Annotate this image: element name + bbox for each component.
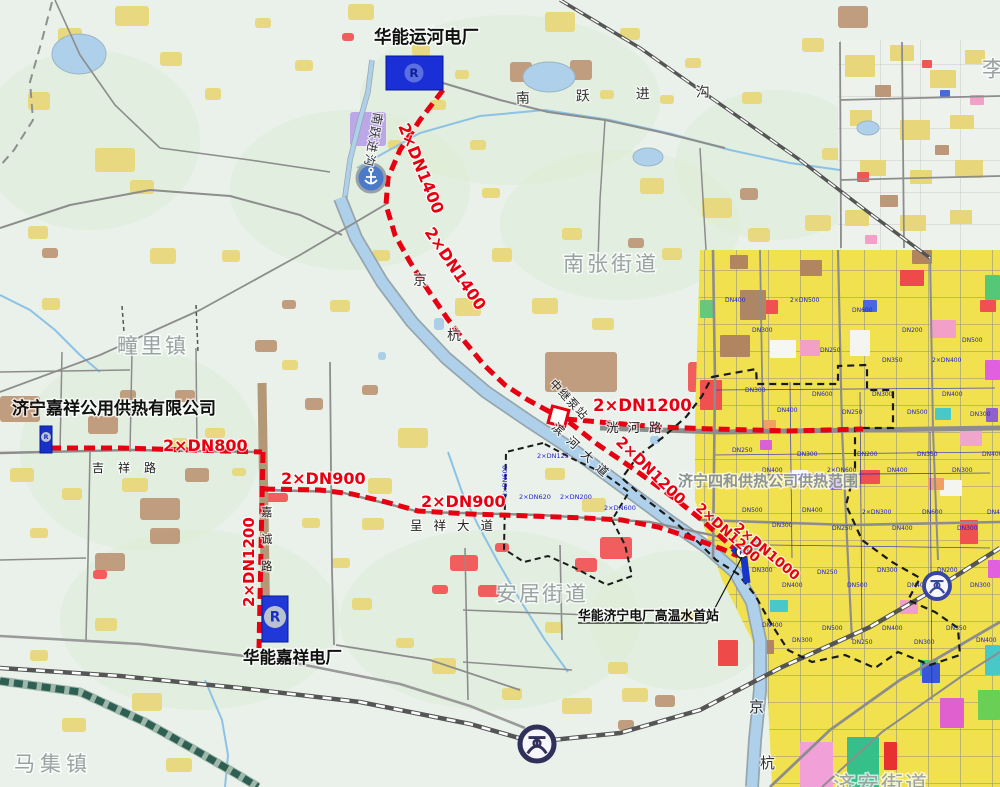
city-block <box>900 270 924 286</box>
city-block <box>922 60 932 68</box>
dn-label: DN500 <box>822 625 843 632</box>
dn-label: DN300 <box>745 387 766 394</box>
area-label: 济安街道 <box>833 773 929 787</box>
area-label: 疃里镇 <box>117 334 189 358</box>
heating-pipeline-planning-map[interactable]: DN400DN3002×DN500DN250DN600DN350DN2002×D… <box>0 0 1000 787</box>
landuse-patch <box>655 695 675 707</box>
dn-label: DN200 <box>857 451 878 458</box>
landuse-patch <box>115 6 149 26</box>
dn-label: DN400 <box>987 509 1000 516</box>
dn-label: DN200 <box>902 327 923 334</box>
city-block <box>718 640 738 666</box>
dn-label: DN600 <box>852 307 873 314</box>
landuse-patch <box>532 298 558 314</box>
landuse-patch <box>432 585 448 594</box>
landuse-patch <box>150 528 180 544</box>
landuse-patch <box>600 537 632 559</box>
landuse-patch <box>838 6 868 28</box>
landuse-patch <box>492 248 512 262</box>
plant-label: 华能济宁电厂高温水首站 <box>578 608 719 624</box>
landuse-patch <box>802 38 824 52</box>
landuse-patch <box>295 60 313 71</box>
dn-label: DN300 <box>872 391 893 398</box>
landuse-patch <box>352 598 372 610</box>
dn-label: DN500 <box>742 507 763 514</box>
landuse-patch <box>432 658 456 674</box>
landuse-patch <box>545 468 565 480</box>
landuse-patch <box>282 360 298 370</box>
landuse-patch <box>305 398 323 410</box>
plant-label: 济宁嘉祥公用供热有限公司 <box>12 398 216 419</box>
pipe-diameter-label: 2×DN900 <box>421 492 506 511</box>
pipe-diameter-label: 2×DN1200 <box>593 396 692 415</box>
landuse-patch <box>396 638 414 648</box>
landuse-patch <box>575 558 597 572</box>
landuse-patch <box>398 428 428 448</box>
dn-label: DN300 <box>970 582 991 589</box>
landuse-patch <box>702 198 732 218</box>
city-block <box>857 172 869 182</box>
road-label: 洸河路 <box>606 420 671 435</box>
dn-label: DN300 <box>914 639 935 646</box>
landuse-patch <box>348 4 374 20</box>
dn-label: DN400 <box>725 297 746 304</box>
road <box>840 42 841 248</box>
dn-label: DN350 <box>917 451 938 458</box>
landuse-patch <box>378 352 386 360</box>
landuse-patch <box>495 543 509 552</box>
dn-label: DN400 <box>887 467 908 474</box>
dn-label: 2×DN300 <box>862 509 892 516</box>
city-block <box>740 290 766 320</box>
landuse-patch <box>30 650 48 661</box>
landuse-patch <box>10 468 34 482</box>
dn-label: DN400 <box>976 637 997 644</box>
city-block <box>770 600 788 612</box>
power-plant-glyph: R <box>270 610 281 626</box>
dn-label: DN400 <box>892 525 913 532</box>
pond <box>523 62 575 92</box>
dn-label: DN300 <box>877 567 898 574</box>
dn-label: DN300 <box>752 327 773 334</box>
landuse-patch <box>562 698 592 714</box>
landuse-patch <box>95 618 117 631</box>
landuse-patch <box>434 318 444 330</box>
city-block <box>700 300 714 318</box>
dn-label: DN400 <box>882 625 903 632</box>
landuse-patch <box>748 228 770 242</box>
pond <box>633 148 663 166</box>
landuse-patch <box>302 518 320 528</box>
road-label: 吉祥路 <box>92 460 170 475</box>
dn-label: DN250 <box>852 639 873 646</box>
pipe-diameter-label: 2×DN1200 <box>240 517 258 607</box>
landuse-patch <box>140 498 180 520</box>
city-block <box>865 235 877 244</box>
city-block <box>760 440 772 450</box>
landuse-patch <box>592 318 614 330</box>
landuse-patch <box>232 468 246 476</box>
dn-label: DN600 <box>922 509 943 516</box>
dn-label: DN500 <box>847 582 868 589</box>
landuse-patch <box>222 250 240 262</box>
area-label: 马集镇 <box>14 752 92 776</box>
city-block <box>980 300 996 312</box>
landuse-patch <box>62 718 86 732</box>
city-block <box>845 55 875 77</box>
dn-label: DN500 <box>907 409 928 416</box>
landuse-patch <box>805 215 831 231</box>
power-plant-glyph: R <box>44 434 49 441</box>
city-block <box>930 70 956 88</box>
landuse-patch <box>332 558 350 568</box>
city-block <box>940 698 964 728</box>
city-block <box>955 160 983 178</box>
landuse-patch <box>122 478 148 492</box>
landuse-patch <box>362 518 384 530</box>
city-block <box>935 408 951 420</box>
landuse-patch <box>740 188 758 200</box>
dn-label: DN350 <box>882 357 903 364</box>
area-label: 安居街道 <box>496 582 588 606</box>
dn-label: DN350 <box>946 625 967 632</box>
landuse-patch <box>362 385 378 395</box>
landuse-patch <box>166 758 192 772</box>
road-label: 京 <box>413 273 427 289</box>
road-label: 杭 <box>760 754 775 772</box>
city-block <box>850 330 870 356</box>
pipe-diameter-label: 2×DN900 <box>281 469 366 488</box>
landuse-patch <box>42 298 60 310</box>
dn-label: 2×DN600 <box>604 504 636 512</box>
city-block <box>900 120 930 140</box>
landuse-patch <box>482 188 500 198</box>
dn-label: DN250 <box>817 569 838 576</box>
landuse-patch <box>368 478 392 494</box>
city-block <box>930 320 956 338</box>
pipe-diameter-label: 2×DN800 <box>163 436 248 455</box>
dn-label: 2×DN125 <box>537 452 569 460</box>
power-plant-glyph: R <box>409 66 418 80</box>
dn-label: DN300 <box>752 567 773 574</box>
dn-label: DN300 <box>970 411 991 418</box>
landuse-patch <box>150 248 176 264</box>
landuse-patch <box>628 238 644 248</box>
plant-label: 华能嘉祥电厂 <box>243 647 342 667</box>
dn-label: DN400 <box>982 451 1000 458</box>
dn-label: 2×DN400 <box>932 357 962 364</box>
landuse-patch <box>545 12 575 32</box>
landuse-patch <box>28 226 48 239</box>
city-block <box>880 195 898 207</box>
dn-label: DN300 <box>797 451 818 458</box>
city-block <box>730 255 748 269</box>
dn-label: 2×DN200 <box>560 493 592 501</box>
landuse-patch <box>30 528 48 538</box>
city-block <box>875 85 891 97</box>
road-label: 嘉诚路 <box>261 505 273 573</box>
dn-label: DN250 <box>732 447 753 454</box>
dn-label: DN300 <box>952 467 973 474</box>
road-label: 呈祥大道 <box>410 518 504 533</box>
city-block <box>950 210 972 224</box>
dn-label: DN300 <box>792 637 813 644</box>
city-block <box>770 340 796 358</box>
dn-label: DN500 <box>962 337 983 344</box>
dn-label: DN300 <box>957 525 978 532</box>
city-block <box>985 275 1000 300</box>
landuse-patch <box>562 228 582 240</box>
landuse-patch <box>95 553 125 571</box>
landuse-patch <box>640 178 664 194</box>
landuse-patch <box>455 70 469 79</box>
dn-label: DN400 <box>802 507 823 514</box>
road-label: 杭 <box>447 328 461 344</box>
landuse-patch <box>622 688 648 702</box>
landuse-patch <box>470 140 486 150</box>
dn-label: DN250 <box>820 347 841 354</box>
landuse-patch <box>95 148 135 172</box>
landuse-patch <box>342 33 354 41</box>
city-block <box>800 260 822 276</box>
landuse-patch <box>42 248 58 258</box>
dn-label: DN300 <box>772 522 793 529</box>
dn-label: DN400 <box>762 622 783 629</box>
landuse-patch <box>608 662 628 674</box>
landuse-patch <box>62 488 82 500</box>
landuse-patch <box>330 300 350 312</box>
city-block <box>720 335 750 357</box>
dn-label: DN400 <box>777 407 798 414</box>
landuse-patch <box>255 340 277 352</box>
city-block <box>978 690 1000 720</box>
landuse-patch <box>132 693 162 711</box>
dn-label: DN600 <box>812 391 833 398</box>
city-block <box>988 560 1000 578</box>
landuse-patch <box>185 468 209 482</box>
city-block <box>935 145 949 155</box>
dn-label: DN400 <box>942 391 963 398</box>
area-label: 济宁四和供热公司供热范围 <box>678 472 858 490</box>
landuse-patch <box>205 88 221 100</box>
landuse-patch <box>93 570 107 579</box>
dn-label: 2×DN620 <box>519 493 551 501</box>
city-block <box>845 210 869 226</box>
landuse-patch <box>450 555 478 571</box>
city-block <box>960 430 982 446</box>
landuse-patch <box>160 52 182 66</box>
pond <box>857 121 879 135</box>
landuse-patch <box>545 622 563 633</box>
area-label: 李 <box>982 58 1000 83</box>
landuse-patch <box>255 18 271 28</box>
city-block <box>800 340 820 356</box>
city-block <box>985 360 1000 380</box>
area-label: 南张街道 <box>563 252 659 276</box>
city-block <box>884 742 897 770</box>
road-label: 京 <box>749 698 764 716</box>
city-block <box>860 470 880 484</box>
landuse-patch <box>282 300 296 309</box>
dn-label: DN250 <box>832 525 853 532</box>
landuse-patch <box>662 248 682 260</box>
city-block <box>950 115 974 129</box>
dn-label: 2×DN500 <box>790 297 820 304</box>
map-svg: DN400DN3002×DN500DN250DN600DN350DN2002×D… <box>0 0 1000 787</box>
landuse-patch <box>685 58 701 68</box>
plant-label: 华能运河电厂 <box>374 27 479 48</box>
dn-label: DN250 <box>842 409 863 416</box>
